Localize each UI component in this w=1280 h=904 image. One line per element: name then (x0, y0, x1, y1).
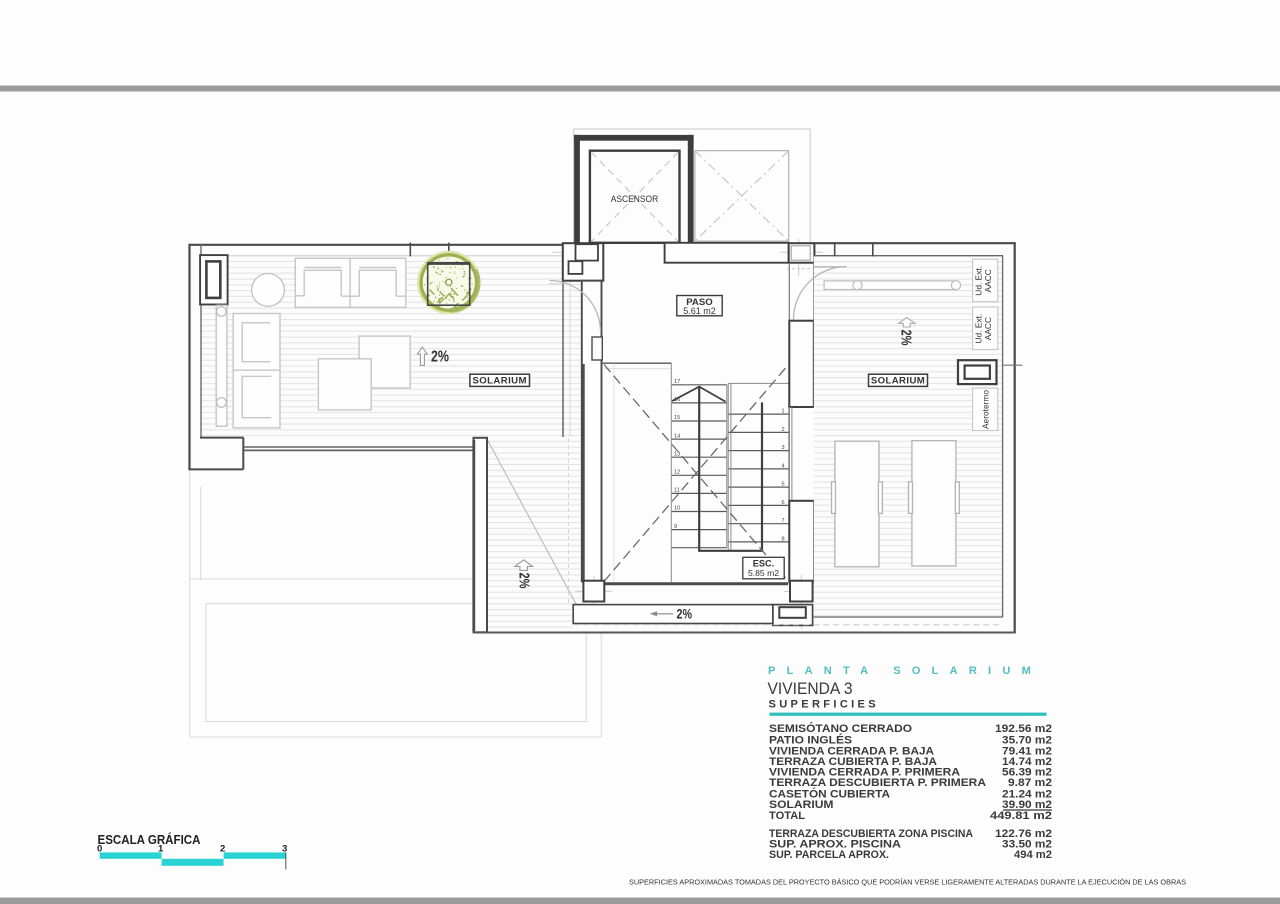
svg-text:4: 4 (781, 463, 784, 469)
svg-text:AACC: AACC (983, 269, 993, 292)
svg-text:SOLARIUM: SOLARIUM (871, 376, 925, 387)
svg-text:SUP. PARCELA APROX.: SUP. PARCELA APROX. (769, 849, 889, 861)
svg-text:Aerotermo: Aerotermo (980, 390, 990, 429)
svg-text:9: 9 (674, 524, 677, 530)
svg-text:2%: 2% (898, 330, 914, 346)
svg-text:2%: 2% (677, 606, 693, 622)
svg-text:7: 7 (781, 518, 784, 524)
svg-text:PLANTA SOLARIUM: PLANTA SOLARIUM (768, 665, 1042, 677)
svg-text:ESCALA GRÁFICA: ESCALA GRÁFICA (98, 832, 201, 847)
svg-text:2: 2 (781, 427, 784, 433)
svg-text:SUPERFICIES APROXIMADAS TOMADA: SUPERFICIES APROXIMADAS TOMADAS DEL PROY… (629, 878, 1186, 887)
svg-text:2%: 2% (516, 573, 532, 589)
svg-text:VIVIENDA 3: VIVIENDA 3 (768, 679, 853, 698)
svg-text:PATIO INGLÉS: PATIO INGLÉS (769, 733, 852, 746)
svg-text:1: 1 (781, 409, 784, 415)
svg-text:9.87 m2: 9.87 m2 (1008, 777, 1052, 789)
svg-text:ESC.: ESC. (753, 559, 774, 569)
svg-text:13: 13 (674, 451, 680, 457)
svg-text:SOLARIUM: SOLARIUM (473, 376, 527, 387)
svg-text:15: 15 (674, 415, 680, 421)
svg-text:ASCENSOR: ASCENSOR (611, 194, 659, 204)
svg-text:8: 8 (781, 536, 784, 542)
svg-text:11: 11 (674, 488, 680, 494)
svg-text:5.85 m2: 5.85 m2 (748, 568, 779, 578)
svg-text:Ud. Ext.: Ud. Ext. (974, 314, 984, 344)
svg-text:10: 10 (674, 506, 680, 512)
svg-text:14: 14 (674, 433, 680, 439)
svg-text:5.61 m2: 5.61 m2 (683, 306, 716, 316)
svg-text:5: 5 (781, 482, 784, 488)
svg-text:192.56 m2: 192.56 m2 (995, 723, 1052, 735)
svg-text:SEMISÓTANO CERRADO: SEMISÓTANO CERRADO (769, 722, 912, 735)
svg-text:SUPERFICIES: SUPERFICIES (769, 698, 880, 710)
svg-text:449.81 m2: 449.81 m2 (990, 810, 1052, 822)
svg-text:2%: 2% (431, 349, 449, 366)
svg-text:AACC: AACC (983, 317, 993, 340)
svg-text:TERRAZA DESCUBIERTA P. PRIMERA: TERRAZA DESCUBIERTA P. PRIMERA (769, 777, 986, 789)
svg-text:17: 17 (674, 379, 680, 385)
svg-text:Ud. Ext.: Ud. Ext. (974, 266, 984, 296)
svg-text:3: 3 (781, 445, 784, 451)
svg-text:6: 6 (781, 500, 784, 506)
svg-text:TOTAL: TOTAL (769, 810, 806, 822)
svg-text:12: 12 (674, 470, 680, 476)
svg-text:494 m2: 494 m2 (1014, 849, 1052, 861)
